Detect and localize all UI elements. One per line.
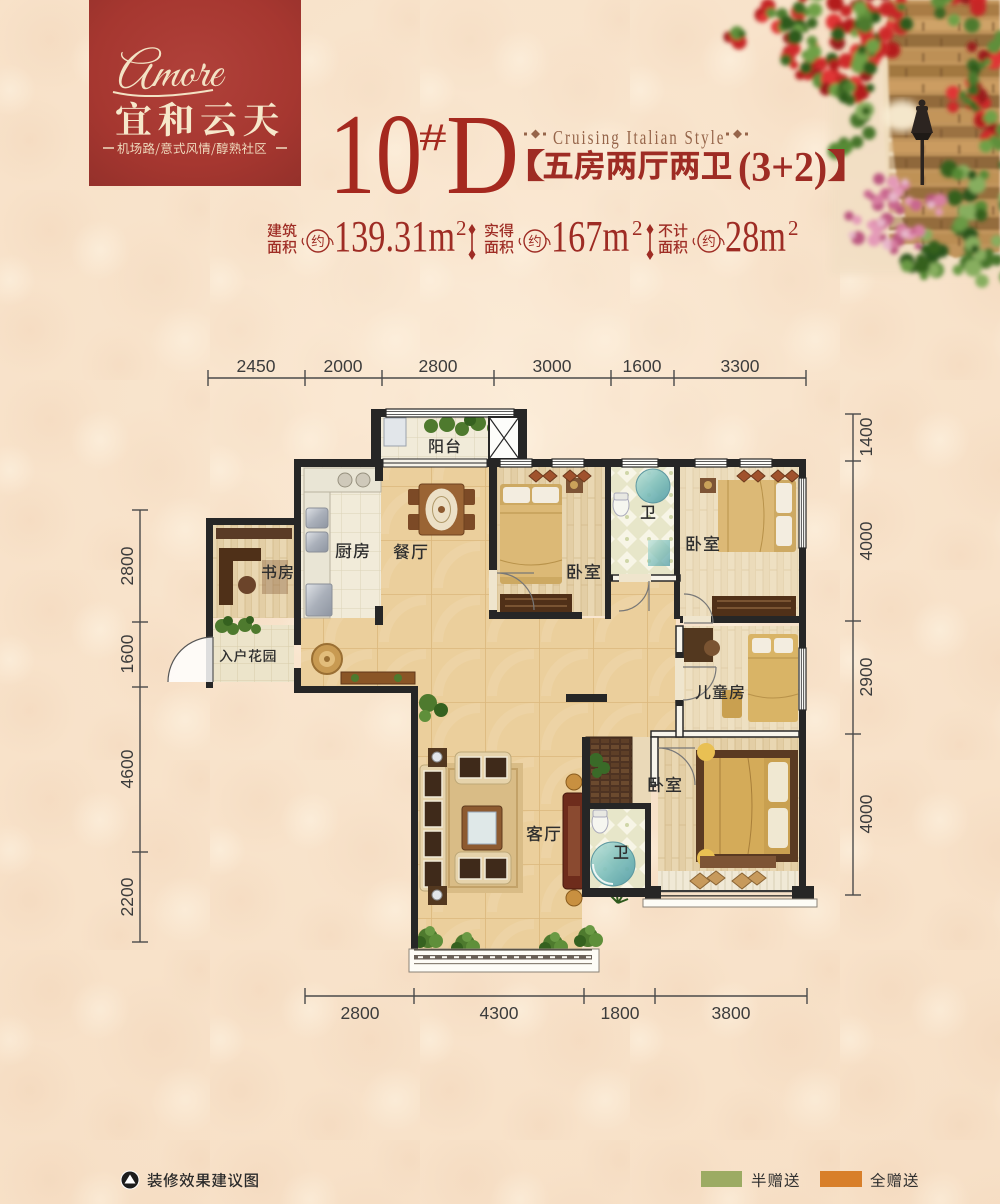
svg-text:2800: 2800 — [341, 1003, 380, 1023]
svg-text:2200: 2200 — [117, 877, 137, 916]
svg-text:1400: 1400 — [856, 417, 876, 456]
svg-text:3300: 3300 — [721, 356, 760, 376]
svg-text:4600: 4600 — [117, 749, 137, 788]
svg-text:2000: 2000 — [324, 356, 363, 376]
svg-text:139.31m: 139.31m — [334, 212, 455, 261]
svg-text:2900: 2900 — [856, 657, 876, 696]
svg-text:1600: 1600 — [623, 356, 662, 376]
svg-text:2450: 2450 — [237, 356, 276, 376]
svg-text:1600: 1600 — [117, 634, 137, 673]
svg-text:10: 10 — [329, 91, 422, 218]
svg-text:1800: 1800 — [601, 1003, 640, 1023]
svg-text:2: 2 — [632, 216, 643, 240]
svg-text:28m: 28m — [725, 212, 786, 261]
svg-text:2: 2 — [456, 216, 467, 240]
svg-text:D: D — [446, 91, 519, 218]
svg-text:4000: 4000 — [856, 794, 876, 833]
svg-text:Cruising Italian Style: Cruising Italian Style — [553, 126, 725, 148]
svg-text:3800: 3800 — [712, 1003, 751, 1023]
svg-text:2800: 2800 — [117, 546, 137, 585]
svg-text:2: 2 — [788, 216, 799, 240]
svg-text:4000: 4000 — [856, 521, 876, 560]
svg-text:2800: 2800 — [419, 356, 458, 376]
svg-text:(3+2): (3+2) — [738, 143, 827, 190]
svg-text:3000: 3000 — [533, 356, 572, 376]
svg-text:167m: 167m — [551, 212, 629, 261]
svg-text:4300: 4300 — [480, 1003, 519, 1023]
svg-text:#: # — [419, 116, 447, 159]
